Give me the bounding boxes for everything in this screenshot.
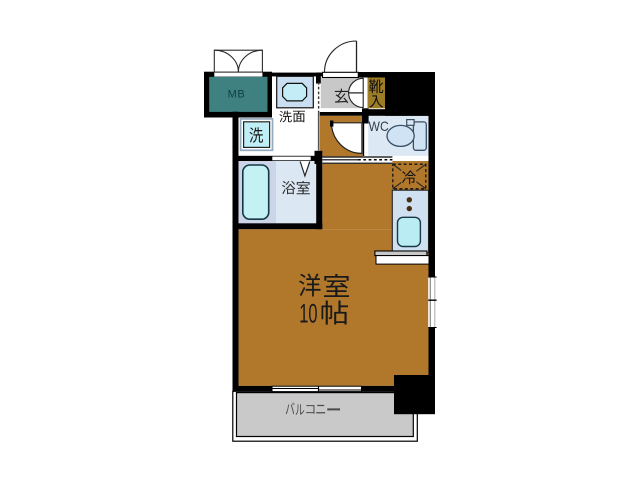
- svg-text:WC: WC: [369, 118, 389, 134]
- svg-text:10: 10: [299, 298, 317, 328]
- svg-text:MB: MB: [228, 89, 246, 101]
